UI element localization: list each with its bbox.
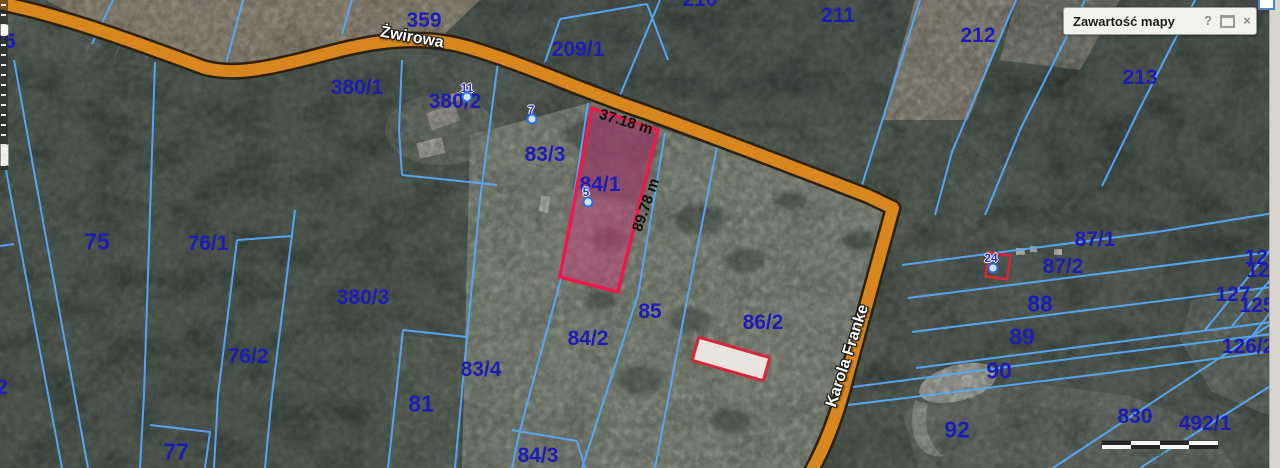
zoom-slider-tick (1, 94, 6, 96)
zoom-slider-tick (1, 44, 6, 46)
zoom-slider-tick (1, 164, 6, 166)
map-contents-panel[interactable]: Zawartość mapy ? × (1063, 7, 1257, 35)
address-point-dot (462, 92, 473, 103)
scrollbar-top-button[interactable] (1258, 0, 1275, 10)
close-icon[interactable]: × (1238, 8, 1256, 34)
zoom-slider-tick (1, 54, 6, 56)
map-viewport[interactable]: 75359210209/1211212213380/1380/283/384/1… (0, 0, 1280, 468)
aerial-map-canvas[interactable] (0, 0, 1280, 468)
scale-bar: 03060 m (1101, 440, 1219, 449)
scale-bar-label: 0 (1102, 451, 1108, 463)
zoom-slider-tick (1, 104, 6, 106)
window-restore-icon[interactable] (1220, 15, 1235, 28)
zoom-slider-tick (1, 134, 6, 136)
zoom-slider-tick (1, 84, 6, 86)
right-scrollbar[interactable] (1269, 0, 1280, 468)
address-point-dot (988, 263, 999, 274)
scale-bar-label: 30 (1156, 451, 1168, 463)
zoom-slider-tick (1, 34, 6, 36)
panel-title: Zawartość mapy (1064, 14, 1199, 29)
zoom-slider[interactable] (0, 0, 8, 170)
zoom-slider-tick (1, 64, 6, 66)
zoom-slider-tick (1, 14, 6, 16)
address-point-dot (583, 197, 594, 208)
scale-bar-label: 60 m (1203, 451, 1227, 463)
address-point-dot (527, 114, 538, 125)
zoom-slider-tick (1, 4, 6, 6)
help-icon[interactable]: ? (1199, 8, 1217, 34)
zoom-slider-tick (1, 144, 6, 146)
zoom-slider-tick (1, 154, 6, 156)
zoom-slider-tick (1, 74, 6, 76)
zoom-slider-tick (1, 124, 6, 126)
zoom-slider-tick (1, 24, 6, 26)
zoom-slider-tick (1, 114, 6, 116)
